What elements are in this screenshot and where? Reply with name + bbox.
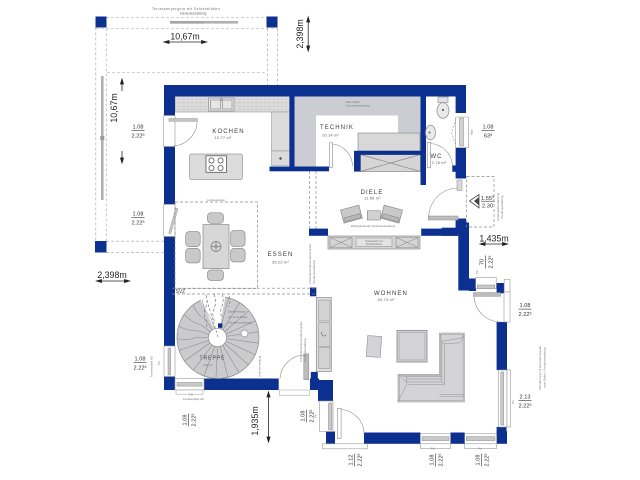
svg-text:Fix: Fix: [314, 414, 318, 418]
svg-text:2,398m: 2,398m: [97, 270, 126, 280]
svg-text:Sonderausstattung: Sonderausstattung: [303, 338, 307, 362]
svg-text:1,435m: 1,435m: [479, 234, 508, 244]
svg-text:10,67m: 10,67m: [170, 32, 199, 42]
svg-text:Fix: Fix: [157, 361, 161, 365]
svg-text:70: 70: [480, 259, 486, 265]
svg-text:Fix: Fix: [478, 447, 482, 451]
svg-text:Sonderausstattung: Sonderausstattung: [180, 12, 207, 16]
svg-text:aus Holz-Stufen: aus Holz-Stufen: [228, 315, 248, 319]
svg-text:2.76 m²: 2.76 m²: [432, 160, 447, 165]
svg-text:2.13: 2.13: [520, 395, 531, 401]
svg-text:Fix: Fix: [475, 270, 479, 274]
svg-text:Spindeltreppe: Spindeltreppe: [228, 310, 246, 314]
svg-text:1.08: 1.08: [133, 212, 144, 218]
svg-text:1.08: 1.08: [520, 303, 531, 309]
svg-text:WC: WC: [430, 154, 442, 160]
svg-text:1.08: 1.08: [483, 125, 494, 131]
svg-text:TREPPE: TREPPE: [200, 356, 226, 362]
svg-text:Sonderausstattung: Sonderausstattung: [228, 321, 252, 325]
svg-text:35.22 m²: 35.22 m²: [272, 259, 289, 264]
svg-text:Terrassenpergola mit Schiebelä: Terrassenpergola mit Schiebeläden: [152, 7, 220, 11]
svg-text:10.14 m²: 10.14 m²: [322, 132, 339, 137]
svg-text:11.56 m²: 11.56 m²: [364, 196, 381, 201]
svg-text:1.08: 1.08: [183, 415, 189, 426]
svg-text:1,935m: 1,935m: [250, 406, 260, 435]
svg-text:Überdachung mit Keramik-Fassad: Überdachung mit Keramik-Fassade: [538, 346, 542, 390]
svg-text:1.08: 1.08: [133, 125, 144, 131]
svg-text:Schiebetüren: Schiebetüren: [366, 242, 383, 246]
svg-text:Fensterpaket AD: Fensterpaket AD: [150, 356, 154, 377]
svg-text:10,67m: 10,67m: [109, 93, 119, 122]
svg-text:Fensterpaket AD: Fensterpaket AD: [183, 397, 204, 401]
svg-text:2.30: 2.30: [482, 203, 493, 209]
svg-text:4,00 m²: 4,00 m²: [203, 363, 213, 367]
svg-text:Sonderausstattung: Sonderausstattung: [312, 260, 316, 284]
svg-text:Wandgarderobe Sonderausstattu: Wandgarderobe Sonderausstattung: [351, 224, 396, 228]
svg-text:10.77 m²: 10.77 m²: [215, 135, 232, 140]
svg-text:1.08: 1.08: [476, 455, 482, 466]
svg-text:Kipp: Kipp: [470, 129, 474, 135]
svg-text:Luftraumkante: Luftraumkante: [207, 198, 225, 202]
svg-text:unter Balkon, Sonderausstattun: unter Balkon, Sonderausstattung: [543, 347, 547, 388]
svg-text:1.08: 1.08: [135, 357, 146, 363]
svg-text:2,398m: 2,398m: [295, 19, 305, 48]
svg-text:Fix: Fix: [511, 400, 515, 404]
svg-text:Tür: Tür: [189, 393, 193, 397]
svg-text:Fix: Fix: [431, 447, 435, 451]
svg-text:40.73 m²: 40.73 m²: [378, 297, 395, 302]
svg-text:1.12: 1.12: [349, 455, 355, 466]
svg-text:Sonderausstattung: Sonderausstattung: [346, 103, 370, 107]
svg-text:Unterschneidung: Unterschneidung: [258, 355, 262, 377]
svg-text:SVZ: SVZ: [176, 289, 186, 295]
svg-text:Sonderausstattung: Sonderausstattung: [500, 195, 504, 219]
svg-text:1.08: 1.08: [301, 411, 307, 422]
svg-text:ESSEN: ESSEN: [268, 252, 294, 258]
svg-text:1.08: 1.08: [430, 455, 436, 466]
svg-text:TECHNIK: TECHNIK: [320, 125, 354, 131]
